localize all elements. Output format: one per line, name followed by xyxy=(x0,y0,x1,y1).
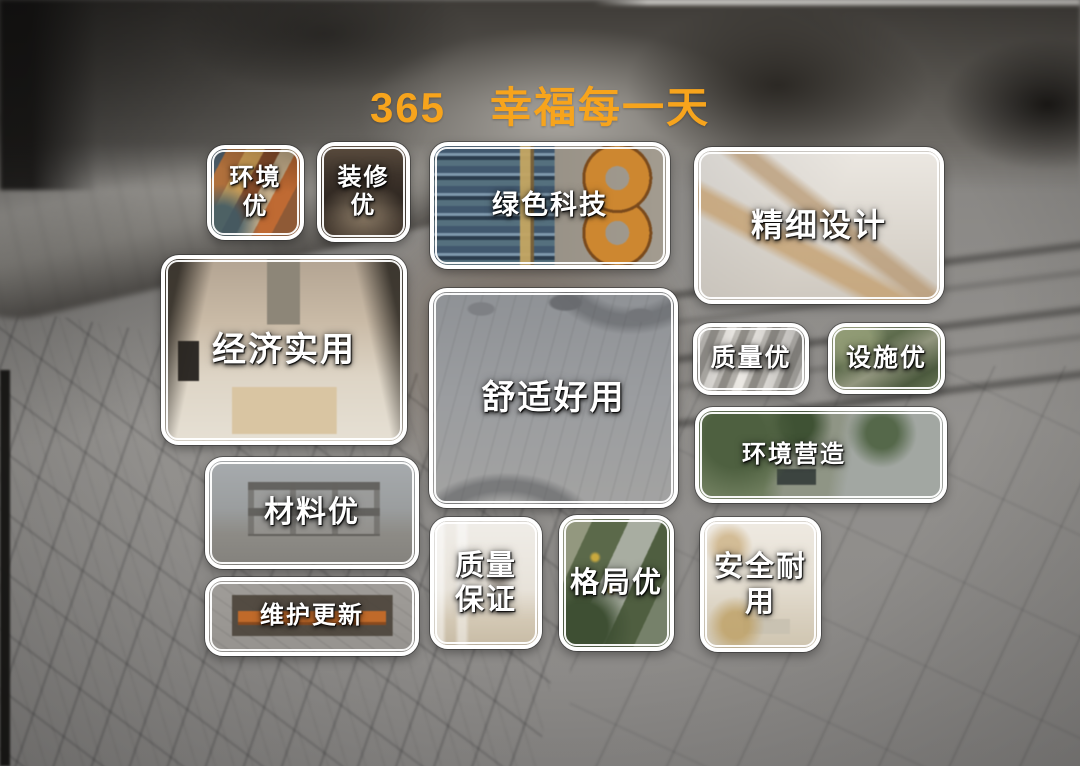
card-economical-label: 经济实用 xyxy=(165,259,403,441)
card-quality-label: 质量优 xyxy=(697,327,805,391)
card-environment-creation: 环境营造 xyxy=(695,407,947,503)
card-comfortable: 舒适好用 xyxy=(429,288,678,508)
card-facilities-label: 设施优 xyxy=(832,327,941,390)
card-maintenance: 维护更新 xyxy=(205,577,419,656)
slide-title: 365 幸福每一天 xyxy=(0,74,1080,135)
card-maintenance-label: 维护更新 xyxy=(209,581,415,652)
card-fine-design-label: 精细设计 xyxy=(698,151,940,300)
card-green-tech: 绿色科技 xyxy=(430,142,670,269)
card-decoration-label: 装修优 xyxy=(321,146,406,238)
card-decoration: 装修优 xyxy=(317,142,410,242)
card-environment: 环境优 xyxy=(207,145,304,240)
card-materials-label: 材料优 xyxy=(209,461,415,565)
card-quality-assurance: 质量保证 xyxy=(430,517,542,649)
card-safety-durability: 安全耐用 xyxy=(700,517,821,652)
card-environment-label: 环境优 xyxy=(211,149,300,236)
card-safety-durability-label: 安全耐用 xyxy=(704,521,817,648)
card-economical: 经济实用 xyxy=(161,255,407,445)
card-layout: 格局优 xyxy=(559,515,674,651)
presentation-slide: 365 幸福每一天 环境优 装修优 绿色科技 精细设计 经济实用 舒适好用 质量… xyxy=(0,0,1080,766)
card-facilities: 设施优 xyxy=(828,323,945,394)
card-green-tech-label: 绿色科技 xyxy=(434,146,666,265)
card-fine-design: 精细设计 xyxy=(694,147,944,304)
card-layout-label: 格局优 xyxy=(563,519,670,647)
card-comfortable-label: 舒适好用 xyxy=(433,292,674,504)
card-quality-assurance-label: 质量保证 xyxy=(434,521,538,645)
card-quality: 质量优 xyxy=(693,323,809,395)
card-environment-creation-label: 环境营造 xyxy=(699,411,943,499)
card-materials: 材料优 xyxy=(205,457,419,569)
background-left-dark-edge xyxy=(0,370,10,766)
